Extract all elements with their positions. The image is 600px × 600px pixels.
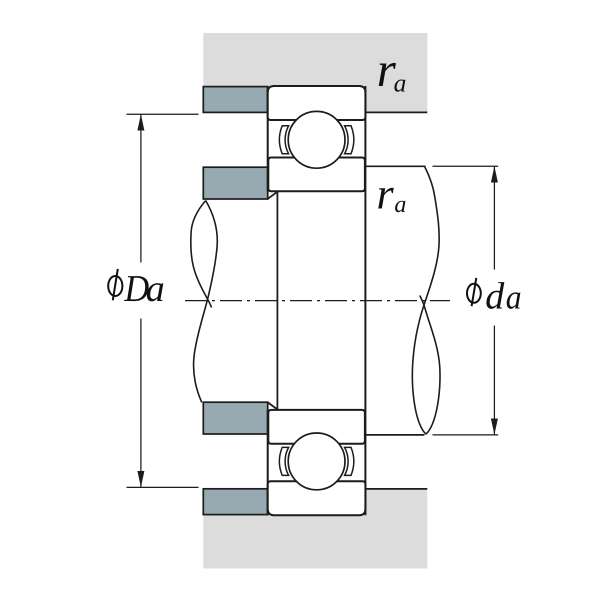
svg-text:a: a <box>146 268 165 310</box>
svg-text:a: a <box>394 192 406 218</box>
svg-text:a: a <box>506 278 522 316</box>
svg-text:r: r <box>377 169 395 218</box>
svg-text:d: d <box>485 275 505 317</box>
svg-text:a: a <box>394 69 407 98</box>
